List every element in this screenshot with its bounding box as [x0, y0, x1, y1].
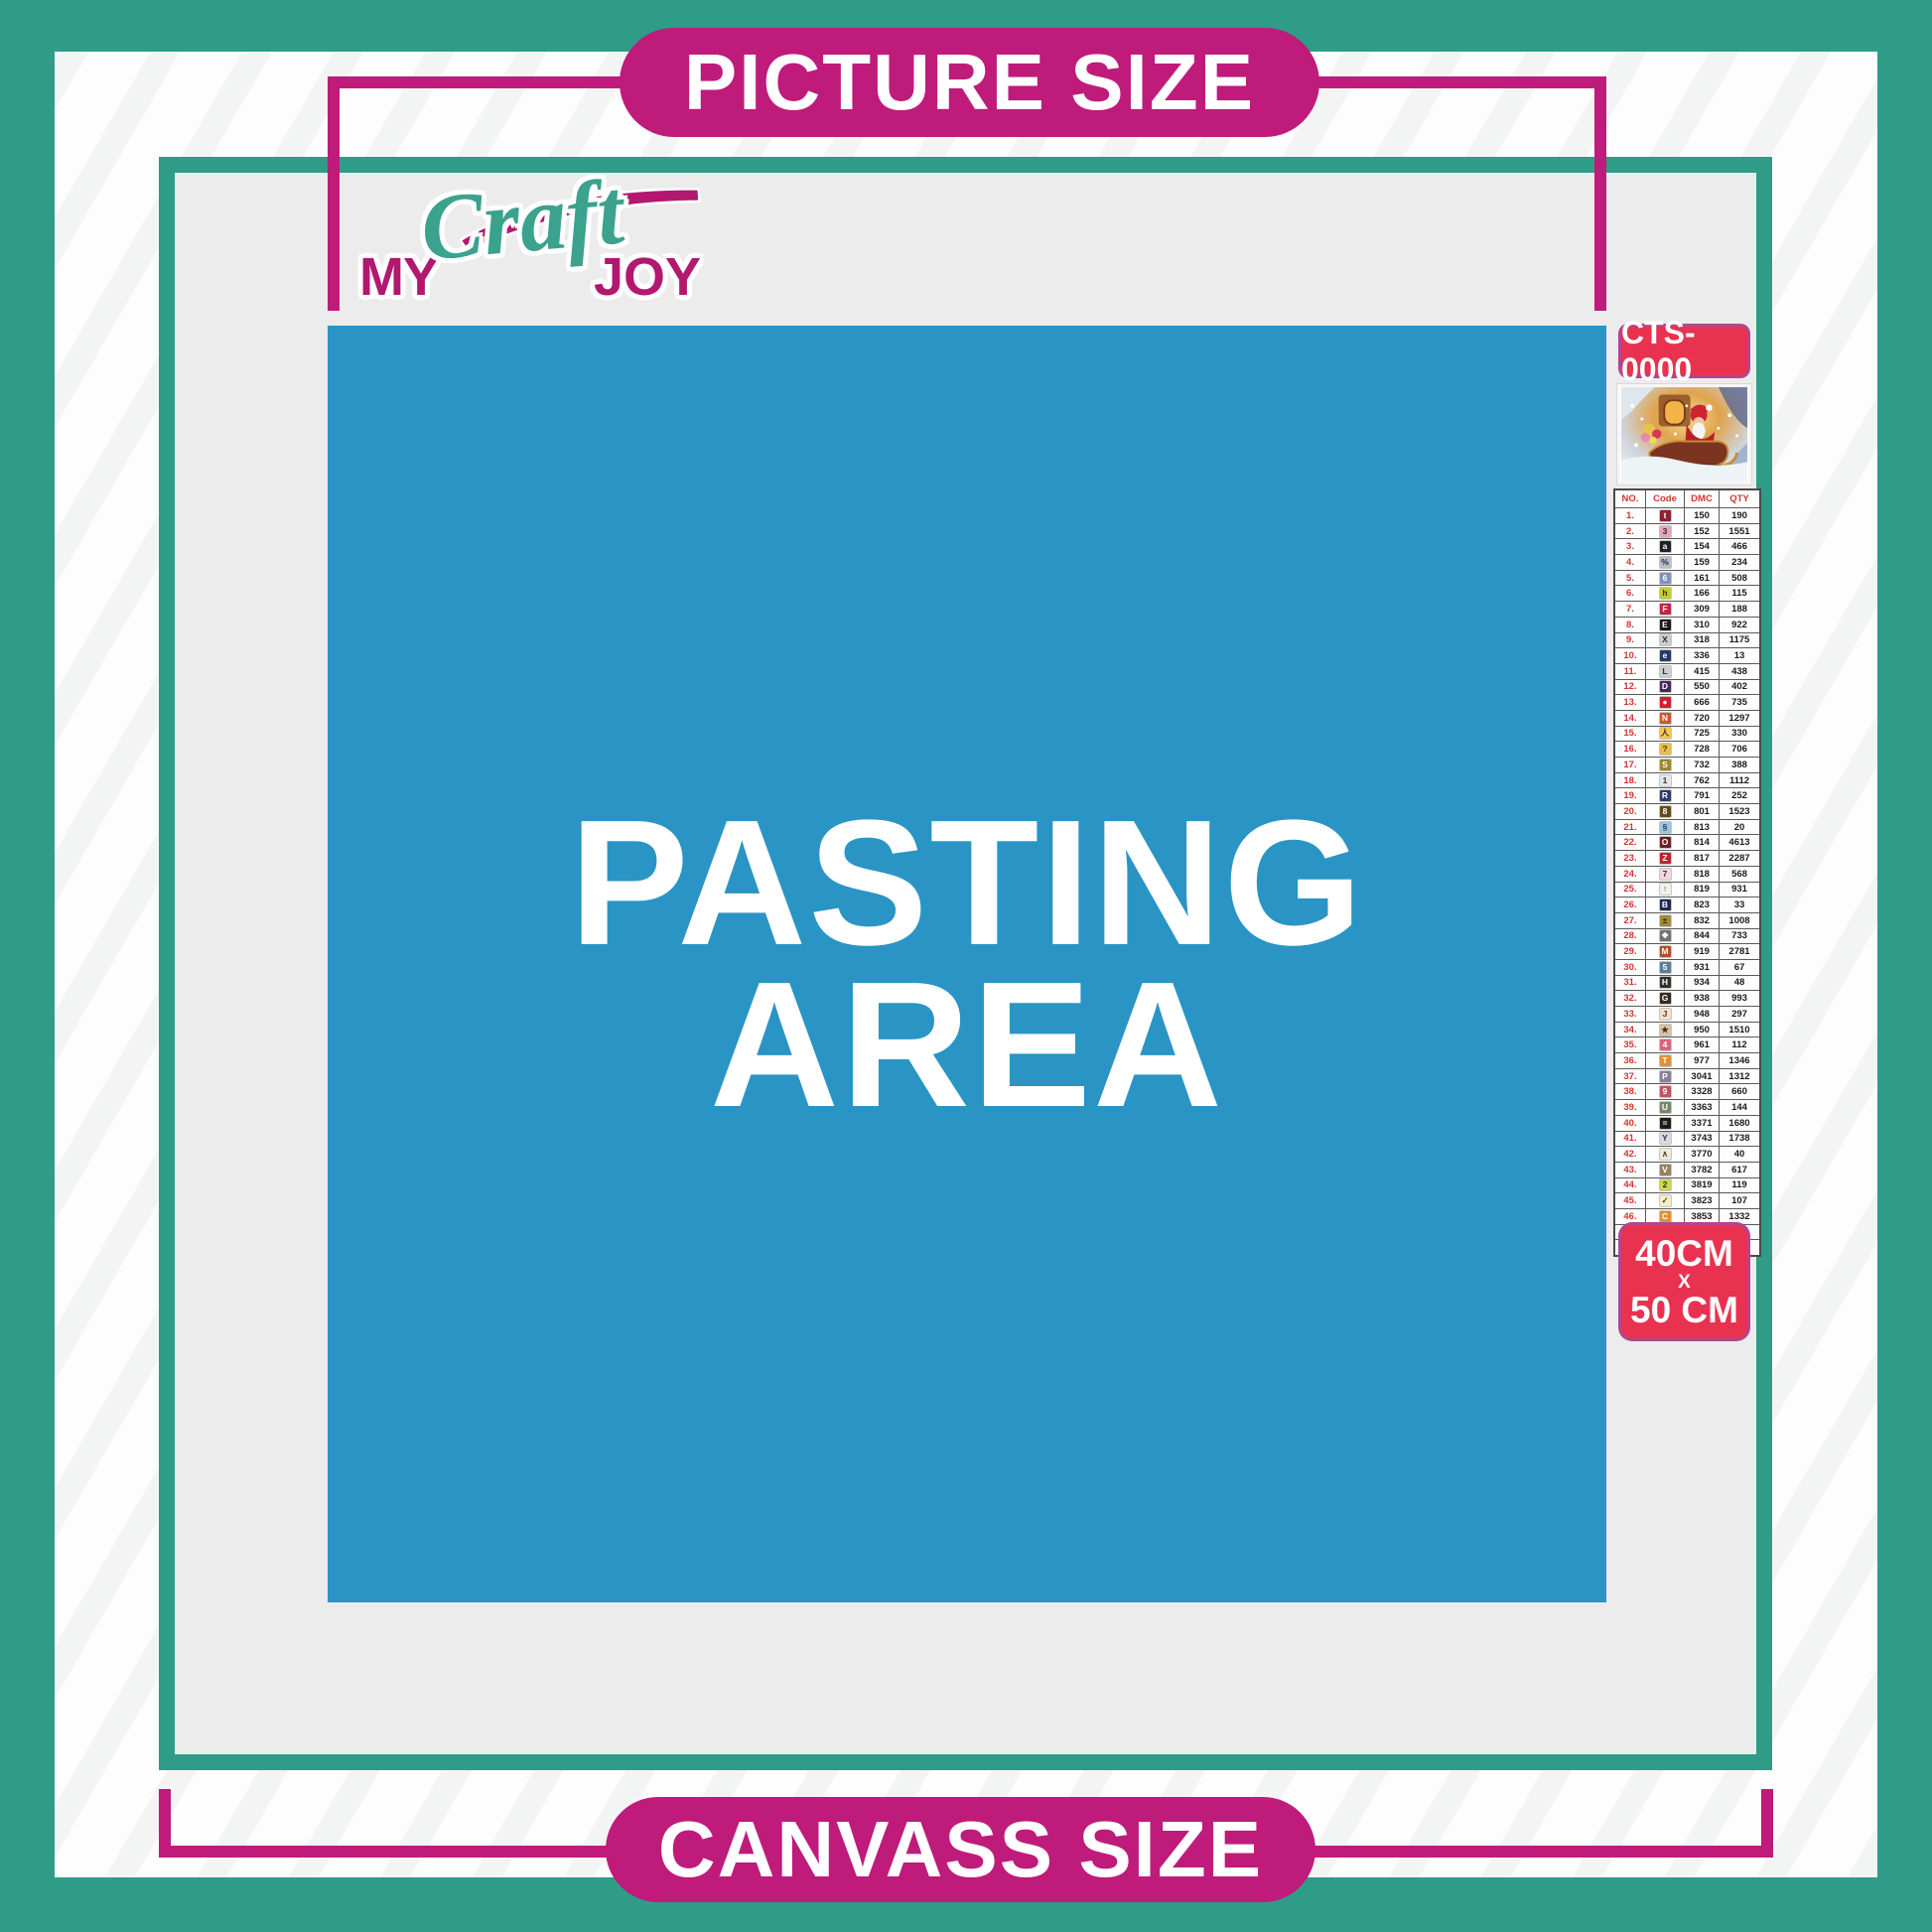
row-code-cell: 6	[1646, 570, 1685, 586]
color-code-chip: D	[1660, 681, 1671, 692]
color-code-chip: P	[1660, 1071, 1671, 1082]
row-dmc-value: 961	[1685, 1037, 1720, 1053]
color-table-body: 1.t1501902.315215513.a1544664.%1592345.6…	[1614, 508, 1760, 1257]
color-code-chip: 8	[1660, 806, 1671, 817]
row-number: 24.	[1614, 866, 1646, 882]
header-qty: QTY	[1720, 489, 1761, 508]
row-dmc-value: 791	[1685, 788, 1720, 804]
row-number: 13.	[1614, 695, 1646, 711]
table-row: 30.593167	[1614, 959, 1760, 975]
color-code-chip: S	[1660, 759, 1671, 770]
table-row: 3.a154466	[1614, 539, 1760, 555]
product-size-guide-image: PASTING AREA PICTURE SIZE CANVASS SIZE M…	[0, 0, 1932, 1932]
table-row: 9.X3181175	[1614, 632, 1760, 648]
row-qty-value: 2781	[1720, 944, 1761, 960]
row-qty-value: 1523	[1720, 804, 1761, 820]
row-qty-value: 1008	[1720, 912, 1761, 928]
row-dmc-value: 3823	[1685, 1193, 1720, 1209]
row-number: 35.	[1614, 1037, 1646, 1053]
row-number: 39.	[1614, 1100, 1646, 1116]
row-number: 19.	[1614, 788, 1646, 804]
color-code-chip: ?	[1660, 744, 1671, 755]
row-number: 6.	[1614, 586, 1646, 602]
color-code-chip: 9	[1660, 1086, 1671, 1097]
table-row: 28.❖844733	[1614, 928, 1760, 944]
row-code-cell: O	[1646, 835, 1685, 851]
row-number: 41.	[1614, 1131, 1646, 1147]
row-code-cell: =	[1646, 1115, 1685, 1131]
row-code-cell: Y	[1646, 1131, 1685, 1147]
row-qty-value: 1112	[1720, 772, 1761, 788]
color-code-chip: 5	[1660, 962, 1671, 973]
row-dmc-value: 3371	[1685, 1115, 1720, 1131]
table-row: 35.4961112	[1614, 1037, 1760, 1053]
row-dmc-value: 732	[1685, 758, 1720, 773]
row-code-cell: 1	[1646, 772, 1685, 788]
row-code-cell: F	[1646, 602, 1685, 618]
row-code-cell: 人	[1646, 726, 1685, 742]
table-row: 34.★9501510	[1614, 1022, 1760, 1037]
logo-joy-text: JOY	[594, 246, 701, 308]
table-row: 19.R791252	[1614, 788, 1760, 804]
color-code-chip: ∧	[1660, 1149, 1671, 1160]
row-qty-value: 1551	[1720, 523, 1761, 539]
row-number: 17.	[1614, 758, 1646, 773]
row-dmc-value: 813	[1685, 819, 1720, 835]
table-row: 27.±8321008	[1614, 912, 1760, 928]
table-row: 16.?728706	[1614, 742, 1760, 758]
row-qty-value: 735	[1720, 695, 1761, 711]
row-code-cell: P	[1646, 1068, 1685, 1084]
table-row: 2.31521551	[1614, 523, 1760, 539]
row-code-cell: Z	[1646, 851, 1685, 867]
color-code-chip: E	[1660, 620, 1671, 630]
color-code-chip: 4	[1660, 1039, 1671, 1050]
table-row: 23.Z8172287	[1614, 851, 1760, 867]
row-number: 30.	[1614, 959, 1646, 975]
row-dmc-value: 919	[1685, 944, 1720, 960]
row-number: 12.	[1614, 679, 1646, 695]
color-code-chip: J	[1660, 1009, 1671, 1020]
row-number: 40.	[1614, 1115, 1646, 1131]
color-code-chip: 6	[1660, 573, 1671, 584]
row-code-cell: 9	[1646, 1084, 1685, 1100]
design-thumbnail	[1617, 384, 1751, 484]
row-qty-value: 568	[1720, 866, 1761, 882]
product-code-badge: CTS-0000	[1618, 324, 1750, 378]
row-code-cell: ●	[1646, 695, 1685, 711]
row-dmc-value: 309	[1685, 602, 1720, 618]
table-row: 41.Y37431738	[1614, 1131, 1760, 1147]
row-dmc-value: 934	[1685, 975, 1720, 991]
row-qty-value: 660	[1720, 1084, 1761, 1100]
table-row: 7.F309188	[1614, 602, 1760, 618]
santa-sleigh-thumbnail-graphic	[1620, 387, 1748, 482]
pasting-area: PASTING AREA	[328, 326, 1606, 1602]
row-number: 9.	[1614, 632, 1646, 648]
row-code-cell: h	[1646, 586, 1685, 602]
row-qty-value: 1312	[1720, 1068, 1761, 1084]
row-number: 14.	[1614, 710, 1646, 726]
row-number: 36.	[1614, 1053, 1646, 1069]
table-row: 21.§81320	[1614, 819, 1760, 835]
color-code-chip: Z	[1660, 853, 1671, 864]
row-dmc-value: 832	[1685, 912, 1720, 928]
row-code-cell: E	[1646, 617, 1685, 632]
color-code-chip: 1	[1660, 775, 1671, 786]
row-dmc-value: 814	[1685, 835, 1720, 851]
row-code-cell: ✓	[1646, 1193, 1685, 1209]
row-number: 27.	[1614, 912, 1646, 928]
row-code-cell: ❖	[1646, 928, 1685, 944]
row-qty-value: 508	[1720, 570, 1761, 586]
table-row: 26.B82333	[1614, 897, 1760, 913]
size-height-text: 50 CM	[1630, 1292, 1738, 1329]
table-row: 40.=33711680	[1614, 1115, 1760, 1131]
row-code-cell: T	[1646, 1053, 1685, 1069]
row-number: 33.	[1614, 1007, 1646, 1023]
color-code-chip: 2	[1660, 1179, 1671, 1190]
color-code-chip: X	[1660, 634, 1671, 645]
row-qty-value: 4613	[1720, 835, 1761, 851]
color-code-chip: e	[1660, 650, 1671, 661]
table-row: 31.H93448	[1614, 975, 1760, 991]
color-code-chip: L	[1660, 666, 1671, 677]
row-number: 3.	[1614, 539, 1646, 555]
row-code-cell: 2	[1646, 1177, 1685, 1193]
table-row: 37.P30411312	[1614, 1068, 1760, 1084]
color-code-chip: h	[1660, 588, 1671, 599]
row-number: 5.	[1614, 570, 1646, 586]
row-dmc-value: 666	[1685, 695, 1720, 711]
row-code-cell: 8	[1646, 804, 1685, 820]
row-code-cell: X	[1646, 632, 1685, 648]
row-qty-value: 466	[1720, 539, 1761, 555]
row-code-cell: L	[1646, 663, 1685, 679]
canvass-size-label: CANVASS SIZE	[606, 1797, 1315, 1902]
color-code-chip: 3	[1660, 526, 1671, 537]
picture-size-bracket-right-leg	[1594, 76, 1606, 311]
row-dmc-value: 3782	[1685, 1162, 1720, 1177]
row-code-cell: N	[1646, 710, 1685, 726]
table-row: 4.%159234	[1614, 555, 1760, 571]
row-qty-value: 1297	[1720, 710, 1761, 726]
header-no: NO.	[1614, 489, 1646, 508]
row-qty-value: 617	[1720, 1162, 1761, 1177]
row-number: 38.	[1614, 1084, 1646, 1100]
table-header: NO. Code DMC QTY	[1614, 489, 1760, 508]
color-code-chip: U	[1660, 1102, 1671, 1113]
color-code-chip: =	[1660, 1118, 1671, 1129]
color-code-chip: ✓	[1660, 1195, 1671, 1206]
row-qty-value: 993	[1720, 991, 1761, 1007]
table-row: 29.M9192781	[1614, 944, 1760, 960]
row-code-cell: D	[1646, 679, 1685, 695]
row-number: 1.	[1614, 508, 1646, 524]
row-code-cell: %	[1646, 555, 1685, 571]
table-row: 8.E310922	[1614, 617, 1760, 632]
row-number: 25.	[1614, 882, 1646, 897]
table-row: 44.23819119	[1614, 1177, 1760, 1193]
row-code-cell: 3	[1646, 523, 1685, 539]
row-dmc-value: 336	[1685, 648, 1720, 664]
row-number: 34.	[1614, 1022, 1646, 1037]
row-code-cell: B	[1646, 897, 1685, 913]
row-code-cell: H	[1646, 975, 1685, 991]
pasting-area-line2: AREA	[710, 964, 1224, 1126]
row-dmc-value: 3328	[1685, 1084, 1720, 1100]
row-qty-value: 112	[1720, 1037, 1761, 1053]
row-number: 11.	[1614, 663, 1646, 679]
row-code-cell: ?	[1646, 742, 1685, 758]
row-code-cell: ∧	[1646, 1147, 1685, 1163]
row-code-cell: t	[1646, 508, 1685, 524]
header-code: Code	[1646, 489, 1685, 508]
row-code-cell: 4	[1646, 1037, 1685, 1053]
row-code-cell: e	[1646, 648, 1685, 664]
row-code-cell: a	[1646, 539, 1685, 555]
table-row: 38.93328660	[1614, 1084, 1760, 1100]
row-dmc-value: 950	[1685, 1022, 1720, 1037]
row-number: 44.	[1614, 1177, 1646, 1193]
table-row: 1.t150190	[1614, 508, 1760, 524]
table-row: 13.●666735	[1614, 695, 1760, 711]
row-number: 16.	[1614, 742, 1646, 758]
row-dmc-value: 3363	[1685, 1100, 1720, 1116]
row-code-cell: V	[1646, 1162, 1685, 1177]
table-row: 12.D550402	[1614, 679, 1760, 695]
color-code-chip: T	[1660, 1055, 1671, 1066]
pasting-area-line1: PASTING	[570, 802, 1365, 964]
table-row: 33.J948297	[1614, 1007, 1760, 1023]
row-qty-value: 40	[1720, 1147, 1761, 1163]
picture-size-label: PICTURE SIZE	[620, 28, 1319, 137]
row-qty-value: 330	[1720, 726, 1761, 742]
picture-size-bracket-left-leg	[328, 76, 340, 311]
row-dmc-value: 3770	[1685, 1147, 1720, 1163]
row-dmc-value: 159	[1685, 555, 1720, 571]
row-qty-value: 33	[1720, 897, 1761, 913]
canvass-size-bracket-left-leg	[159, 1789, 171, 1858]
row-qty-value: 297	[1720, 1007, 1761, 1023]
row-qty-value: 188	[1720, 602, 1761, 618]
row-qty-value: 1680	[1720, 1115, 1761, 1131]
row-number: 32.	[1614, 991, 1646, 1007]
row-number: 29.	[1614, 944, 1646, 960]
color-code-chip: ±	[1660, 915, 1671, 926]
color-code-chip: ❖	[1660, 930, 1671, 941]
color-code-chip: H	[1660, 977, 1671, 988]
table-row: 15.人725330	[1614, 726, 1760, 742]
row-number: 42.	[1614, 1147, 1646, 1163]
row-dmc-value: 801	[1685, 804, 1720, 820]
row-qty-value: 931	[1720, 882, 1761, 897]
row-qty-value: 144	[1720, 1100, 1761, 1116]
color-code-chip: G	[1660, 993, 1671, 1004]
row-qty-value: 48	[1720, 975, 1761, 991]
color-code-chip: §	[1660, 822, 1671, 833]
row-dmc-value: 931	[1685, 959, 1720, 975]
row-dmc-value: 818	[1685, 866, 1720, 882]
row-number: 43.	[1614, 1162, 1646, 1177]
row-number: 2.	[1614, 523, 1646, 539]
row-code-cell: 5	[1646, 959, 1685, 975]
row-dmc-value: 318	[1685, 632, 1720, 648]
color-code-chip: V	[1660, 1165, 1671, 1175]
canvass-size-bracket-right-leg	[1761, 1789, 1773, 1858]
color-code-chip: a	[1660, 541, 1671, 552]
row-number: 22.	[1614, 835, 1646, 851]
row-qty-value: 13	[1720, 648, 1761, 664]
row-dmc-value: 728	[1685, 742, 1720, 758]
row-dmc-value: 152	[1685, 523, 1720, 539]
table-row: 22.O8144613	[1614, 835, 1760, 851]
row-code-cell: ↑	[1646, 882, 1685, 897]
row-dmc-value: 150	[1685, 508, 1720, 524]
row-dmc-value: 823	[1685, 897, 1720, 913]
row-dmc-value: 3743	[1685, 1131, 1720, 1147]
row-dmc-value: 938	[1685, 991, 1720, 1007]
row-qty-value: 2287	[1720, 851, 1761, 867]
color-code-chip: %	[1660, 557, 1671, 568]
color-code-chip: C	[1660, 1211, 1671, 1222]
row-number: 18.	[1614, 772, 1646, 788]
row-qty-value: 190	[1720, 508, 1761, 524]
row-dmc-value: 948	[1685, 1007, 1720, 1023]
row-number: 8.	[1614, 617, 1646, 632]
color-code-chip: t	[1660, 510, 1671, 521]
row-number: 4.	[1614, 555, 1646, 571]
table-row: 10.e33613	[1614, 648, 1760, 664]
row-qty-value: 438	[1720, 663, 1761, 679]
row-dmc-value: 161	[1685, 570, 1720, 586]
table-row: 43.V3782617	[1614, 1162, 1760, 1177]
row-number: 45.	[1614, 1193, 1646, 1209]
row-number: 23.	[1614, 851, 1646, 867]
row-dmc-value: 720	[1685, 710, 1720, 726]
table-row: 32.G938993	[1614, 991, 1760, 1007]
row-dmc-value: 166	[1685, 586, 1720, 602]
row-dmc-value: 3819	[1685, 1177, 1720, 1193]
row-code-cell: 7	[1646, 866, 1685, 882]
row-dmc-value: 3041	[1685, 1068, 1720, 1084]
table-row: 17.S732388	[1614, 758, 1760, 773]
color-code-chip: R	[1660, 790, 1671, 801]
row-qty-value: 922	[1720, 617, 1761, 632]
size-width-text: 40CM	[1635, 1235, 1733, 1273]
row-dmc-value: 725	[1685, 726, 1720, 742]
mycraftjoy-logo: MY Craft JOY	[359, 185, 701, 310]
row-code-cell: ★	[1646, 1022, 1685, 1037]
row-dmc-value: 310	[1685, 617, 1720, 632]
table-row: 11.L415438	[1614, 663, 1760, 679]
table-row: 14.N7201297	[1614, 710, 1760, 726]
row-number: 15.	[1614, 726, 1646, 742]
color-code-chip: N	[1660, 713, 1671, 724]
row-number: 21.	[1614, 819, 1646, 835]
color-code-chip: O	[1660, 837, 1671, 848]
row-dmc-value: 819	[1685, 882, 1720, 897]
row-qty-value: 234	[1720, 555, 1761, 571]
row-code-cell: S	[1646, 758, 1685, 773]
color-code-chip: Y	[1660, 1133, 1671, 1144]
row-dmc-value: 415	[1685, 663, 1720, 679]
table-row: 6.h166115	[1614, 586, 1760, 602]
color-code-chip: 人	[1660, 728, 1671, 739]
row-dmc-value: 550	[1685, 679, 1720, 695]
color-code-chip: M	[1660, 946, 1671, 957]
color-code-chip: F	[1660, 604, 1671, 615]
row-code-cell: J	[1646, 1007, 1685, 1023]
row-qty-value: 388	[1720, 758, 1761, 773]
row-number: 10.	[1614, 648, 1646, 664]
row-dmc-value: 817	[1685, 851, 1720, 867]
row-qty-value: 1738	[1720, 1131, 1761, 1147]
color-code-chip: ↑	[1660, 884, 1671, 895]
row-code-cell: U	[1646, 1100, 1685, 1116]
row-qty-value: 1346	[1720, 1053, 1761, 1069]
row-number: 28.	[1614, 928, 1646, 944]
row-qty-value: 706	[1720, 742, 1761, 758]
row-qty-value: 119	[1720, 1177, 1761, 1193]
row-dmc-value: 762	[1685, 772, 1720, 788]
color-code-chip: ●	[1660, 697, 1671, 708]
color-code-chip: B	[1660, 899, 1671, 910]
row-number: 37.	[1614, 1068, 1646, 1084]
row-number: 7.	[1614, 602, 1646, 618]
table-row: 39.U3363144	[1614, 1100, 1760, 1116]
table-row: 24.7818568	[1614, 866, 1760, 882]
color-code-chip: ★	[1660, 1025, 1671, 1035]
canvas-size-badge: 40CM X 50 CM	[1618, 1222, 1750, 1341]
row-dmc-value: 844	[1685, 928, 1720, 944]
row-number: 20.	[1614, 804, 1646, 820]
row-qty-value: 107	[1720, 1193, 1761, 1209]
size-x-text: X	[1678, 1273, 1691, 1292]
table-row: 5.6161508	[1614, 570, 1760, 586]
row-code-cell: ±	[1646, 912, 1685, 928]
row-code-cell: R	[1646, 788, 1685, 804]
row-code-cell: §	[1646, 819, 1685, 835]
row-qty-value: 1175	[1720, 632, 1761, 648]
table-row: 42.∧377040	[1614, 1147, 1760, 1163]
row-qty-value: 252	[1720, 788, 1761, 804]
row-code-cell: M	[1646, 944, 1685, 960]
table-row: 25.↑819931	[1614, 882, 1760, 897]
row-number: 26.	[1614, 897, 1646, 913]
header-dmc: DMC	[1685, 489, 1720, 508]
table-row: 36.T9771346	[1614, 1053, 1760, 1069]
row-dmc-value: 977	[1685, 1053, 1720, 1069]
row-qty-value: 1510	[1720, 1022, 1761, 1037]
row-qty-value: 115	[1720, 586, 1761, 602]
row-number: 31.	[1614, 975, 1646, 991]
row-dmc-value: 154	[1685, 539, 1720, 555]
row-qty-value: 20	[1720, 819, 1761, 835]
row-code-cell: G	[1646, 991, 1685, 1007]
row-qty-value: 402	[1720, 679, 1761, 695]
table-row: 45.✓3823107	[1614, 1193, 1760, 1209]
color-code-chip: 7	[1660, 869, 1671, 880]
row-qty-value: 67	[1720, 959, 1761, 975]
dmc-color-table: NO. Code DMC QTY 1.t1501902.315215513.a1…	[1613, 488, 1761, 1257]
row-qty-value: 733	[1720, 928, 1761, 944]
table-row: 18.17621112	[1614, 772, 1760, 788]
table-row: 20.88011523	[1614, 804, 1760, 820]
